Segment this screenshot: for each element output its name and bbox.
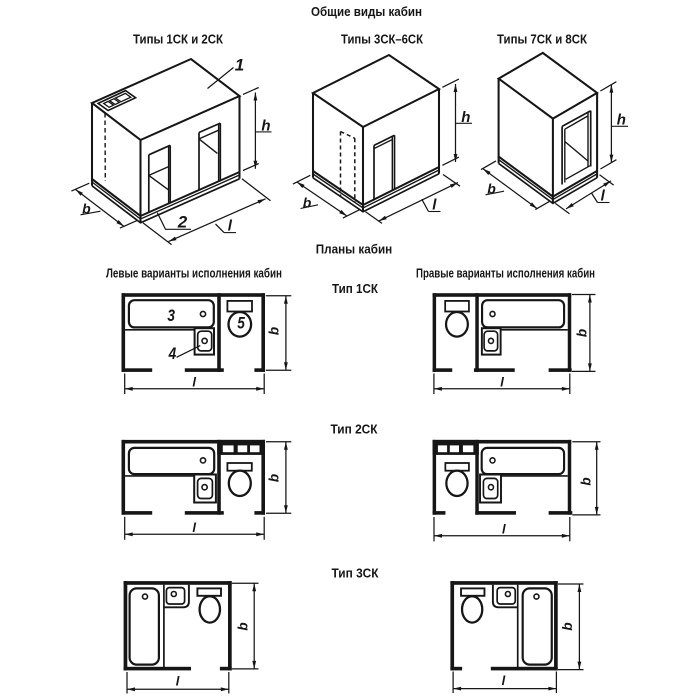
svg-text:l: l <box>502 673 506 688</box>
svg-text:b: b <box>267 474 282 482</box>
svg-text:b: b <box>578 477 593 485</box>
svg-text:2: 2 <box>177 213 188 232</box>
svg-text:Общие виды кабин: Общие виды кабин <box>311 4 422 19</box>
svg-text:4: 4 <box>168 344 177 363</box>
svg-text:Левые варианты исполнения каби: Левые варианты исполнения кабин <box>106 267 282 281</box>
svg-text:5: 5 <box>237 314 245 333</box>
svg-text:l: l <box>192 520 196 535</box>
svg-text:Типы 7СК и 8СК: Типы 7СК и 8СК <box>497 33 587 47</box>
svg-text:l: l <box>192 374 196 389</box>
svg-text:l: l <box>500 375 504 390</box>
svg-text:b: b <box>236 622 251 630</box>
svg-text:l: l <box>502 521 506 536</box>
svg-text:b: b <box>575 329 590 337</box>
svg-text:Планы кабин: Планы кабин <box>316 242 393 257</box>
svg-text:Типы 3СК–6СК: Типы 3СК–6СК <box>341 33 423 47</box>
svg-text:Правые варианты исполнения каб: Правые варианты исполнения кабин <box>416 267 595 281</box>
svg-text:Тип 1СК: Тип 1СК <box>332 282 378 296</box>
svg-text:1: 1 <box>235 55 244 74</box>
svg-text:3: 3 <box>167 306 175 325</box>
svg-text:Тип 3СК: Тип 3СК <box>332 567 379 581</box>
svg-text:b: b <box>267 327 282 335</box>
svg-text:b: b <box>560 622 575 630</box>
svg-text:Типы 1СК и 2СК: Типы 1СК и 2СК <box>133 33 223 47</box>
svg-text:Тип 2СК: Тип 2СК <box>331 423 378 437</box>
svg-text:l: l <box>176 674 180 689</box>
